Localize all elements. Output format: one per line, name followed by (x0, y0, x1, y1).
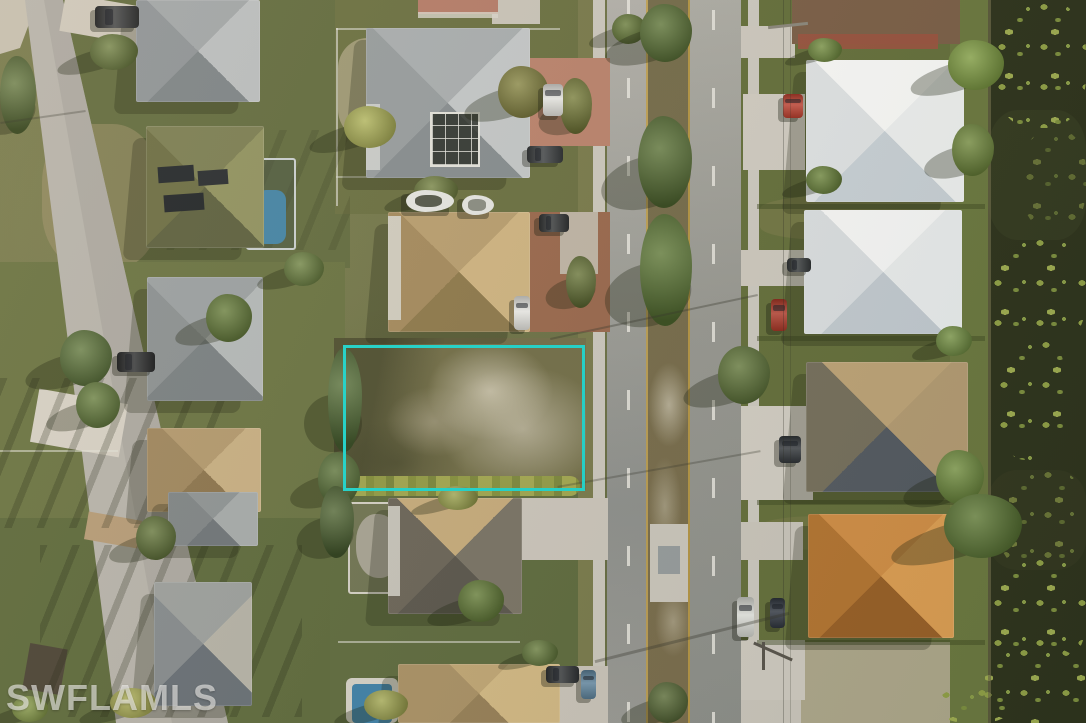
lane-dashes-west (627, 0, 630, 723)
suv-dark (539, 214, 569, 232)
solar-panel-3 (163, 193, 204, 213)
house-gray-partial-left (168, 492, 258, 546)
car-white (543, 84, 563, 116)
watermark: SWFLAMLS (6, 680, 218, 716)
car-blue (581, 670, 596, 699)
canal-bank-edge (988, 0, 991, 723)
car-white-windshield (545, 90, 560, 95)
car-red (783, 94, 803, 118)
canal-vegetation-3 (996, 338, 1068, 460)
building-top-center-eave (418, 12, 498, 18)
pavement-top-center (492, 0, 540, 24)
house10-eave-strip (388, 506, 400, 596)
canal-vegetation-8 (1022, 130, 1086, 230)
median-edge-line-east (688, 0, 690, 723)
road-median (648, 0, 690, 723)
car-dark-windshield (792, 260, 796, 271)
truck-red (771, 299, 787, 331)
median-edge-line-west (646, 0, 648, 723)
house-gray-topleft (136, 0, 260, 102)
suv-dark-windshield (546, 216, 551, 230)
car-red-windshield (785, 99, 800, 103)
driveway-house10 (518, 498, 608, 560)
solar-panel-2 (198, 169, 229, 186)
lot-highlight (343, 345, 585, 491)
truck-dark-windshield (125, 354, 132, 369)
van-dark-windshield (772, 604, 783, 609)
aerial-photo: SWFLAMLS (0, 0, 1086, 723)
power-line-2 (790, 0, 791, 723)
power-line-1 (783, 0, 784, 723)
suv-dark-windshield (553, 668, 559, 681)
fence-house10-bottom (338, 641, 520, 643)
canal-vegetation-1 (994, 0, 1086, 128)
boat-deck (468, 199, 487, 210)
house-olive-solar (146, 126, 264, 248)
canal-vegetation-2 (990, 236, 1086, 348)
house-tan-bottom-center (398, 664, 560, 723)
solar-panel-1 (157, 165, 194, 183)
car-blue-windshield (583, 676, 594, 681)
house8-eave-strip (388, 216, 401, 320)
car-white-windshield (516, 303, 528, 308)
van-white (737, 597, 754, 637)
lane-dashes-east (712, 10, 715, 723)
canal-vegetation-7 (938, 688, 1010, 723)
suv-dark-windshield (535, 148, 541, 161)
apron-bottom-right (741, 700, 801, 723)
car-white (514, 296, 530, 330)
boat-deck (415, 195, 443, 207)
suv-dark (527, 146, 563, 163)
car-dark (95, 6, 139, 28)
suv-dark (546, 666, 579, 683)
apron-topright (741, 26, 795, 58)
van-white-windshield (739, 605, 752, 611)
truck-dark (117, 352, 155, 372)
car-dark-windshield (105, 9, 113, 26)
median-utility-box (658, 546, 680, 574)
house-white-roof-2 (804, 210, 962, 334)
utility-pole-bottom (762, 642, 765, 670)
